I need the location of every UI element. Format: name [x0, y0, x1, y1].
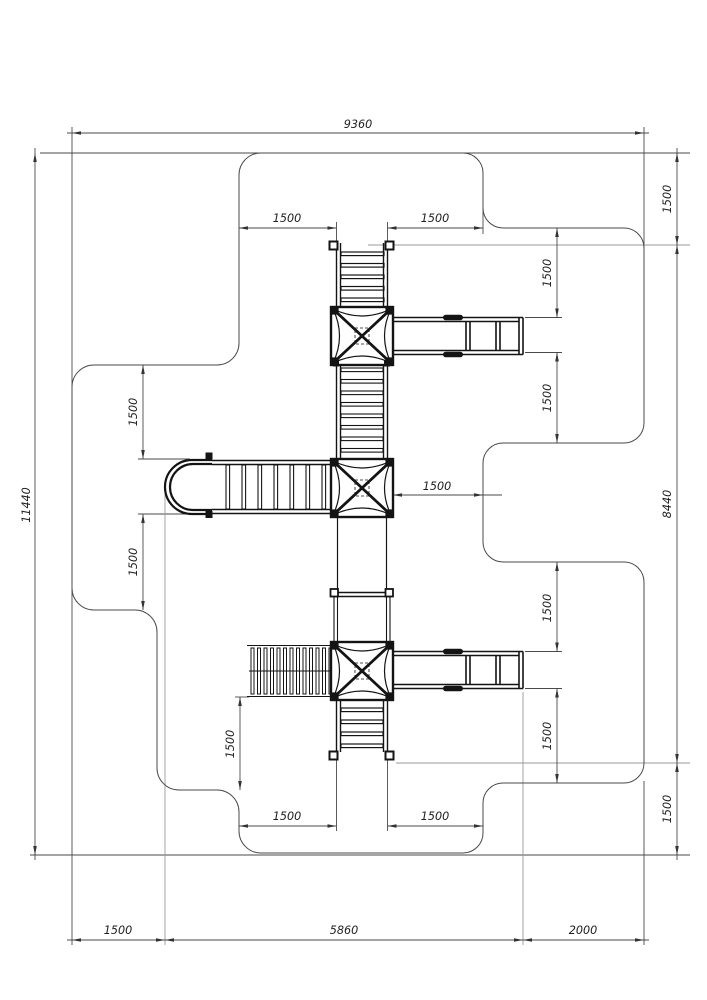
dim-label-climber-bottom: 1500 — [224, 730, 237, 758]
dim-label-overall-width: 9360 — [344, 118, 372, 131]
drawing-canvas: 9360 11440 1500 8440 1500 1500 5860 2000… — [0, 0, 707, 1000]
dim-label-middle-tower-right: 1500 — [423, 480, 451, 493]
dimension-lines — [35, 133, 677, 940]
tower-bottom — [331, 642, 393, 700]
dim-label-upper-slide-top: 1500 — [541, 259, 554, 287]
dim-label-upper-slide-bottom: 1500 — [541, 384, 554, 412]
top-ladder — [330, 242, 394, 308]
dimension-labels: 9360 11440 1500 8440 1500 1500 5860 2000… — [20, 118, 674, 937]
lower-shaft — [331, 517, 394, 642]
extension-lines — [30, 127, 690, 945]
dim-label-bottom-ladder-left: 1500 — [273, 810, 301, 823]
dim-label-bottom-ladder-right: 1500 — [421, 810, 449, 823]
vertical-bridge — [333, 361, 390, 460]
tower-top — [331, 307, 393, 365]
tower-middle — [331, 459, 393, 517]
dim-label-bottom-left-offset: 1500 — [104, 924, 132, 937]
dim-label-left-bridge-bottom: 1500 — [127, 548, 140, 576]
climber — [247, 646, 332, 697]
dim-label-equipment-height: 8440 — [661, 490, 674, 518]
dim-label-overall-height: 11440 — [20, 487, 33, 523]
dimension-arrows — [33, 131, 679, 942]
plan-drawing: 9360 11440 1500 8440 1500 1500 5860 2000… — [0, 0, 707, 1000]
dim-label-left-bridge-top: 1500 — [127, 398, 140, 426]
dim-label-top-ladder-right: 1500 — [421, 212, 449, 225]
equipment — [165, 242, 523, 760]
dim-label-top-ladder-left: 1500 — [273, 212, 301, 225]
dim-label-bottom-equipment-width: 5860 — [330, 924, 358, 937]
slide-lower — [393, 649, 523, 692]
dim-label-lower-slide-bottom: 1500 — [541, 722, 554, 750]
dim-label-bottom-clearance-right: 1500 — [661, 795, 674, 823]
dim-label-top-clearance-right: 1500 — [661, 185, 674, 213]
bridge-d-end — [165, 460, 212, 514]
slide-upper — [393, 315, 523, 358]
bottom-ladder — [330, 700, 394, 760]
dim-label-lower-slide-top: 1500 — [541, 594, 554, 622]
left-bridge — [165, 453, 331, 519]
dim-label-bottom-right-offset: 2000 — [569, 924, 597, 937]
